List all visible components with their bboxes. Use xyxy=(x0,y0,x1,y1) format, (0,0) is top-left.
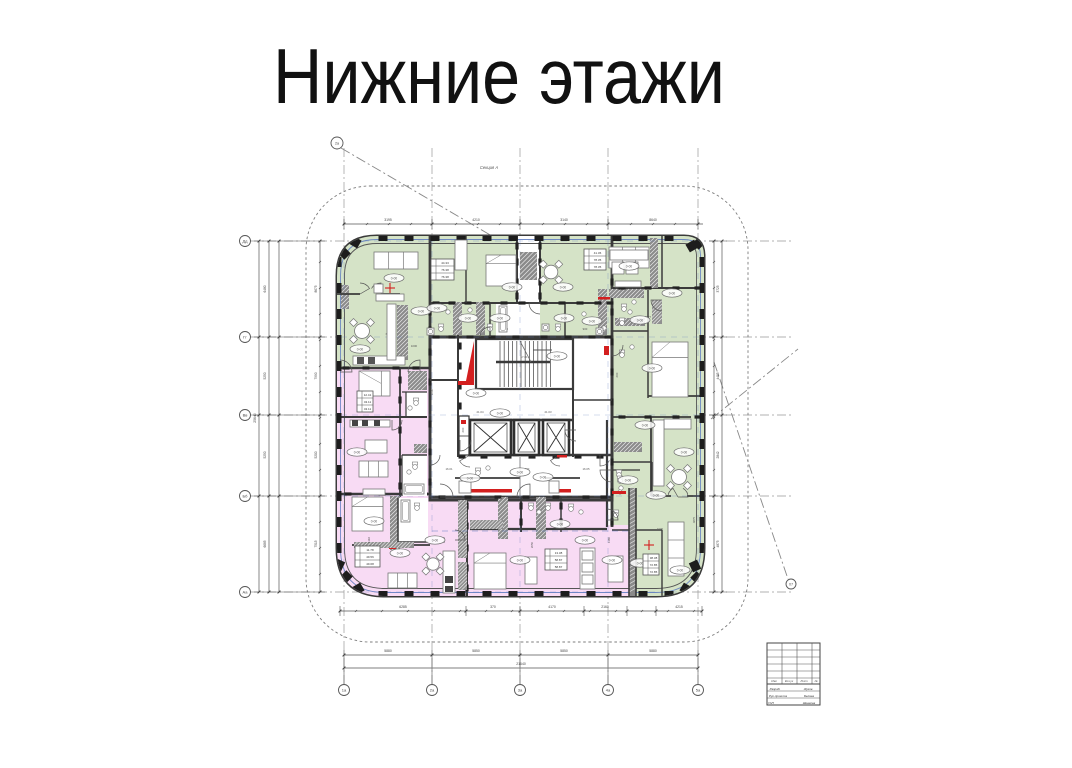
svg-text:0-00: 0-00 xyxy=(637,318,644,322)
svg-text:1а: 1а xyxy=(342,687,347,692)
svg-text:0-00: 0-00 xyxy=(517,470,524,474)
svg-text:76.38: 76.38 xyxy=(441,275,449,279)
svg-text:21.04: 21.04 xyxy=(477,410,484,414)
svg-text:7990: 7990 xyxy=(314,372,318,379)
svg-text:0-00: 0-00 xyxy=(669,291,676,295)
svg-text:1000: 1000 xyxy=(657,527,664,531)
svg-text:900: 900 xyxy=(583,327,588,331)
svg-text:44.33: 44.33 xyxy=(441,261,449,265)
svg-text:0-00: 0-00 xyxy=(609,558,616,562)
svg-text:Секция А: Секция А xyxy=(480,165,498,170)
svg-text:0-00: 0-00 xyxy=(561,316,568,320)
svg-text:6480: 6480 xyxy=(263,285,267,292)
svg-text:0-00: 0-00 xyxy=(625,478,632,482)
svg-text:38.38: 38.38 xyxy=(650,556,658,560)
svg-text:78.35: 78.35 xyxy=(594,258,602,262)
svg-text:6685: 6685 xyxy=(263,540,267,547)
svg-text:№: № xyxy=(814,679,817,683)
svg-text:Бб: Бб xyxy=(243,493,249,498)
svg-text:21640: 21640 xyxy=(516,662,526,666)
svg-text:3725: 3725 xyxy=(716,285,720,292)
svg-text:8640: 8640 xyxy=(649,218,657,222)
svg-text:5250: 5250 xyxy=(263,372,267,379)
svg-text:370: 370 xyxy=(490,605,496,609)
svg-text:2а: 2а xyxy=(335,141,339,145)
svg-text:16.01: 16.01 xyxy=(446,467,453,471)
svg-text:3а: 3а xyxy=(518,687,523,692)
svg-text:0-00: 0-00 xyxy=(397,551,404,555)
svg-text:4875: 4875 xyxy=(692,516,696,523)
svg-text:78.35: 78.35 xyxy=(594,265,602,269)
svg-text:12.41: 12.41 xyxy=(364,393,372,397)
svg-text:600: 600 xyxy=(615,372,619,377)
svg-text:25640: 25640 xyxy=(253,413,257,423)
svg-text:Кол.уч: Кол.уч xyxy=(785,679,794,683)
svg-text:0-00: 0-00 xyxy=(540,475,547,479)
svg-text:16.05: 16.05 xyxy=(583,467,590,471)
svg-text:49.56: 49.56 xyxy=(366,555,374,559)
svg-text:5850: 5850 xyxy=(560,649,568,653)
svg-text:3140: 3140 xyxy=(560,218,568,222)
svg-text:0-00: 0-00 xyxy=(391,276,398,280)
svg-text:Вв: Вв xyxy=(243,412,248,417)
svg-text:43.11: 43.11 xyxy=(364,400,372,404)
svg-text:2а: 2а xyxy=(430,687,435,692)
svg-text:11.78: 11.78 xyxy=(366,548,374,552)
svg-text:7515: 7515 xyxy=(314,540,318,547)
svg-text:5880: 5880 xyxy=(384,649,392,653)
svg-text:17.01: 17.01 xyxy=(521,355,528,359)
svg-text:4875: 4875 xyxy=(716,540,720,547)
svg-text:0-00: 0-00 xyxy=(418,309,425,313)
svg-text:Рук.проекта: Рук.проекта xyxy=(769,694,787,698)
svg-text:6285: 6285 xyxy=(399,605,407,609)
svg-text:13.38: 13.38 xyxy=(555,551,563,555)
svg-text:Гг: Гг xyxy=(243,334,247,339)
svg-text:0-00: 0-00 xyxy=(509,285,516,289)
svg-text:4210: 4210 xyxy=(472,218,480,222)
svg-text:3195: 3195 xyxy=(384,218,392,222)
svg-text:5850: 5850 xyxy=(472,649,480,653)
svg-text:0-00: 0-00 xyxy=(642,423,649,427)
svg-text:0-00: 0-00 xyxy=(681,450,688,454)
svg-text:0-00: 0-00 xyxy=(497,411,504,415)
svg-text:43.11: 43.11 xyxy=(364,407,372,411)
svg-text:5880: 5880 xyxy=(649,649,657,653)
svg-text:1000: 1000 xyxy=(411,344,418,348)
svg-text:4а: 4а xyxy=(606,687,611,692)
svg-text:4170: 4170 xyxy=(548,605,556,609)
svg-text:0-00: 0-00 xyxy=(677,568,684,572)
svg-text:4215: 4215 xyxy=(675,605,683,609)
svg-text:5200: 5200 xyxy=(314,451,318,458)
svg-text:Дд: Дд xyxy=(242,238,248,243)
svg-text:4485: 4485 xyxy=(716,372,720,379)
svg-text:0-00: 0-00 xyxy=(637,561,644,565)
svg-text:72.85: 72.85 xyxy=(650,563,658,567)
svg-text:0-00: 0-00 xyxy=(653,493,660,497)
svg-text:Жуков: Жуков xyxy=(803,687,813,691)
svg-text:0-00: 0-00 xyxy=(560,285,567,289)
svg-text:Аа: Аа xyxy=(243,589,249,594)
svg-text:8675: 8675 xyxy=(314,285,318,292)
svg-text:600: 600 xyxy=(461,427,465,432)
svg-text:0-00: 0-00 xyxy=(649,366,656,370)
svg-text:72.85: 72.85 xyxy=(650,570,658,574)
svg-text:Беляев: Беляев xyxy=(804,694,814,698)
svg-text:ГАП: ГАП xyxy=(768,701,774,705)
svg-text:Разраб.: Разраб. xyxy=(770,687,781,691)
svg-text:0-00: 0-00 xyxy=(497,316,504,320)
svg-text:0-00: 0-00 xyxy=(371,519,378,523)
svg-text:Изм: Изм xyxy=(771,679,776,683)
svg-text:0-00: 0-00 xyxy=(517,558,524,562)
svg-text:2842: 2842 xyxy=(716,451,720,458)
svg-text:0-00: 0-00 xyxy=(465,316,472,320)
svg-text:5250: 5250 xyxy=(263,451,267,458)
svg-text:2160: 2160 xyxy=(601,605,609,609)
svg-text:0-00: 0-00 xyxy=(557,522,564,526)
svg-text:0-00: 0-00 xyxy=(434,306,441,310)
svg-text:58.87: 58.87 xyxy=(555,558,563,562)
svg-text:41.36: 41.36 xyxy=(594,251,602,255)
svg-text:0-00: 0-00 xyxy=(357,347,364,351)
svg-text:49.68: 49.68 xyxy=(366,562,374,566)
svg-text:76.38: 76.38 xyxy=(441,268,449,272)
svg-text:1192: 1192 xyxy=(367,537,371,543)
svg-text:0-00: 0-00 xyxy=(626,264,633,268)
svg-text:2050: 2050 xyxy=(530,541,534,548)
svg-text:1600: 1600 xyxy=(430,388,434,395)
svg-text:0-00: 0-00 xyxy=(467,476,474,480)
svg-text:Лист: Лист xyxy=(799,679,808,683)
svg-text:1180: 1180 xyxy=(607,537,611,543)
svg-text:Х7: Х7 xyxy=(789,582,793,586)
svg-text:5а: 5а xyxy=(696,687,701,692)
svg-text:0-00: 0-00 xyxy=(554,354,561,358)
svg-text:58.87: 58.87 xyxy=(555,565,563,569)
svg-text:Шевелев: Шевелев xyxy=(803,701,816,705)
svg-text:21.03: 21.03 xyxy=(545,410,552,414)
svg-text:0-00: 0-00 xyxy=(354,450,361,454)
svg-text:0-00: 0-00 xyxy=(589,319,596,323)
svg-text:0-00: 0-00 xyxy=(473,391,480,395)
svg-text:0-00: 0-00 xyxy=(432,538,439,542)
svg-text:0-00: 0-00 xyxy=(582,538,589,542)
